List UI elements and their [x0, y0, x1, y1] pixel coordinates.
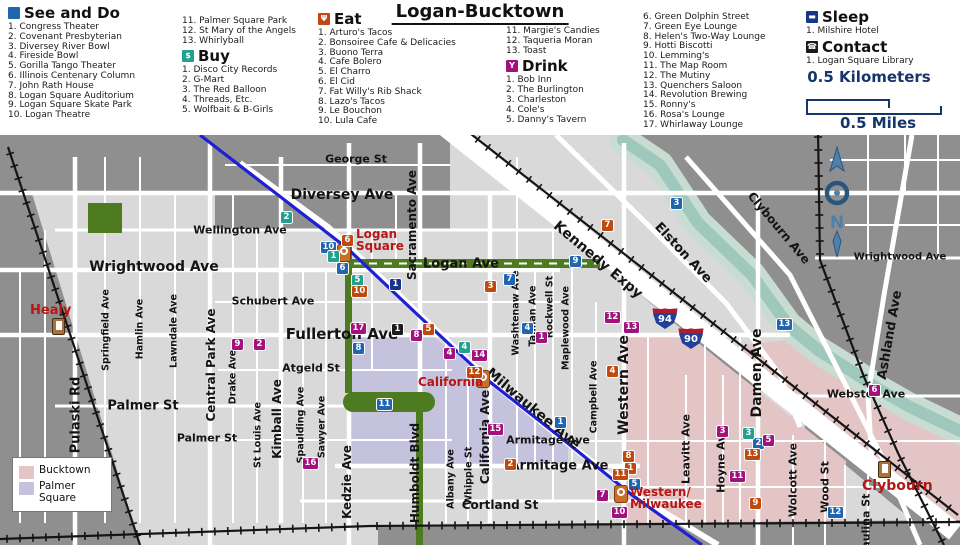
street-label: Albany Ave: [446, 449, 457, 509]
legend-column: ▬Sleep1. Milshire Hotel☎Contact1. Logan …: [806, 7, 914, 67]
poi-badge-eat-9: 9: [749, 497, 762, 510]
street-label: Atgeld St: [282, 362, 340, 375]
poi-badge-eat-7: 7: [601, 219, 614, 232]
legend-item-contact-1: 1. Logan Square Library: [806, 57, 914, 67]
street-label: Kedzie Ave: [340, 445, 354, 519]
clybourn-station-icon: [878, 461, 891, 478]
poi-badge-see_do-11: 11: [376, 398, 393, 411]
category-label: Drink: [522, 57, 568, 75]
legend-item-sleep-1: 1. Milshire Hotel: [806, 27, 914, 37]
street-label: Hamlin Ave: [135, 299, 146, 360]
poi-badge-drink-13: 13: [623, 321, 640, 334]
poi-badge-drink-12: 12: [604, 311, 621, 324]
region-legend-box: BucktownPalmer Square: [12, 457, 112, 512]
poi-badge-drink-8: 8: [410, 329, 423, 342]
poi-badge-buy-3: 3: [742, 427, 755, 440]
category-header-buy: $Buy: [182, 47, 296, 65]
street-label: Palmer St: [177, 432, 237, 445]
poi-badge-eat-5: 5: [422, 323, 435, 336]
legend-column: 11. Margie's Candies12. Taqueria Moran13…: [506, 27, 600, 125]
category-label: Sleep: [822, 8, 869, 26]
region-label: Bucktown: [39, 465, 91, 477]
legend-column: 6. Green Dolphin Street7. Green Eye Loun…: [643, 13, 766, 131]
poi-badge-eat-6: 6: [341, 234, 354, 247]
street-label: Campbell Ave: [589, 361, 600, 434]
category-header-contact: ☎Contact: [806, 38, 914, 56]
poi-badge-contact-1: 1: [391, 323, 404, 336]
sleep-category-icon: ▬: [806, 11, 818, 23]
poi-badge-drink-9: 9: [231, 338, 244, 351]
street-label: Logan Ave: [423, 257, 499, 272]
poi-badge-see_do-4: 4: [521, 322, 534, 335]
street-label: Damen Ave: [749, 329, 765, 418]
poi-badge-drink-11: 11: [729, 470, 746, 483]
interstate-shield-90: 90: [678, 328, 704, 349]
buy-category-icon: $: [182, 50, 194, 62]
poi-badge-buy-2: 2: [280, 211, 293, 224]
street-label: Sacramento Ave: [405, 170, 419, 280]
california-station-label: California: [418, 376, 483, 388]
legend-item-eat-13: 13. Toast: [506, 47, 600, 57]
legend-item-eat-10: 10. Lula Cafe: [318, 117, 456, 127]
logan-bucktown-map-page: Logan-Bucktown See and Do1. Congress The…: [0, 0, 960, 545]
category-header-eat: ΨEat: [318, 10, 456, 28]
legend-item-see_do-10: 10. Logan Theatre: [8, 111, 135, 121]
poi-badge-drink-2: 2: [253, 338, 266, 351]
legend-item-drink-5: 5. Danny's Tavern: [506, 116, 600, 126]
poi-badge-eat-11: 11: [612, 468, 629, 481]
street-label: Spaulding Ave: [296, 387, 307, 464]
poi-badge-see_do-8: 8: [352, 342, 365, 355]
contact-category-icon: ☎: [806, 41, 818, 53]
street-label: Maplewood Ave: [561, 286, 572, 370]
street-label: St Louis Ave: [253, 402, 264, 468]
street-label: Schubert Ave: [232, 295, 315, 308]
poi-badge-drink-4: 4: [443, 347, 456, 360]
poi-badge-eat-3: 3: [484, 280, 497, 293]
interstate-shield-94: 94: [652, 308, 678, 329]
legend-column: ΨEat1. Arturo's Tacos2. Bonsoiree Cafe &…: [318, 9, 456, 127]
healy-station-label: Healy: [30, 304, 71, 317]
street-label: Palmer St: [107, 399, 178, 414]
see_do-category-icon: [8, 7, 20, 19]
poi-badge-drink-1: 1: [535, 331, 548, 344]
street-label: Paulina St: [860, 494, 873, 545]
legend-item-buy-5: 5. Wolfbait & B-Girls: [182, 106, 296, 116]
street-label: Central Park Ave: [204, 309, 218, 422]
street-label: Wellington Ave: [193, 224, 286, 237]
poi-badge-drink-15: 15: [487, 423, 504, 436]
scale-miles-label: 0.5 Miles: [818, 114, 938, 132]
street-label: Clybourn Ave: [745, 189, 813, 267]
poi-badge-eat-2: 2: [504, 458, 517, 471]
eat-category-icon: Ψ: [318, 13, 330, 25]
region-label: Palmer Square: [39, 481, 105, 504]
street-label: Lawndale Ave: [169, 294, 180, 368]
street-label: Diversey Ave: [291, 187, 394, 203]
street-label: Wolcott Ave: [787, 443, 800, 517]
poi-badge-drink-14: 14: [471, 349, 488, 362]
region-legend-row: Palmer Square: [19, 481, 105, 504]
healy-station-icon: [52, 318, 65, 335]
poi-badge-drink-16: 16: [302, 457, 319, 470]
poi-badge-buy-1: 1: [327, 250, 340, 263]
street-label: Wrightwood Ave: [89, 259, 219, 275]
poi-badge-buy-4: 4: [458, 341, 471, 354]
map-overlays: George StDiversey AveWellington AveWrigh…: [0, 135, 960, 545]
poi-badge-eat-4: 4: [606, 365, 619, 378]
street-label: Elston Ave: [651, 220, 714, 286]
street-label: Sawyer Ave: [317, 396, 328, 458]
region-legend-row: Bucktown: [19, 465, 105, 479]
street-label: Pulaski Rd: [69, 377, 84, 454]
poi-badge-see_do-9: 9: [569, 255, 582, 268]
poi-badge-eat-8: 8: [622, 450, 635, 463]
street-label: Kimball Ave: [270, 379, 284, 459]
poi-badge-see_do-6: 6: [336, 262, 349, 275]
category-label: Contact: [822, 38, 887, 56]
street-label: Fullerton Ave: [286, 325, 398, 343]
street-label: Western Ave: [616, 335, 632, 435]
street-label: Wrightwood Ave: [854, 252, 947, 263]
legend-column: See and Do1. Congress Theater2. Covenant…: [8, 3, 135, 121]
category-header-drink: YDrink: [506, 57, 600, 75]
poi-badge-drink-6: 6: [868, 384, 881, 397]
street-label: George St: [325, 153, 387, 166]
region-swatch: [19, 482, 34, 495]
legend-column: 11. Palmer Square Park12. St Mary of the…: [182, 17, 296, 115]
poi-badge-eat-13: 13: [744, 448, 761, 461]
poi-badge-sleep-1: 1: [389, 278, 402, 291]
poi-badge-eat-10: 10: [351, 285, 368, 298]
legend-item-drink-17: 17. Whirlaway Lounge: [643, 121, 766, 131]
street-label: Drake Ave: [228, 350, 239, 404]
poi-badge-see_do-1: 1: [554, 416, 567, 429]
street-label: Whipple St: [464, 447, 475, 506]
logan-square-station-label: LoganSquare: [356, 228, 404, 252]
poi-badge-drink-5: 5: [762, 434, 775, 447]
poi-badge-see_do-12: 12: [827, 506, 844, 519]
category-label: See and Do: [24, 4, 120, 22]
scale-km-label: 0.5 Kilometers: [800, 68, 938, 86]
poi-badge-drink-17: 17: [350, 322, 367, 335]
poi-badge-drink-10: 10: [611, 506, 628, 519]
poi-badge-see_do-3: 3: [670, 197, 683, 210]
street-label: Ashland Ave: [875, 289, 905, 380]
street-label: Springfield Ave: [101, 289, 112, 371]
clybourn-station-label: Clybourn: [862, 479, 933, 493]
poi-badge-see_do-13: 13: [776, 318, 793, 331]
poi-badge-see_do-7: 7: [503, 273, 516, 286]
street-label: California Ave: [478, 390, 492, 484]
street-label: Leavitt Ave: [680, 414, 693, 484]
region-swatch: [19, 466, 34, 479]
legend-bar: Logan-Bucktown See and Do1. Congress The…: [0, 0, 960, 135]
category-label: Buy: [198, 47, 230, 65]
poi-badge-drink-7: 7: [596, 489, 609, 502]
category-header-see_do: See and Do: [8, 4, 135, 22]
legend-item-see_do-13: 13. Whirlyball: [182, 37, 296, 47]
map-canvas: N George StDiversey AveWellington AveWri…: [0, 135, 960, 545]
category-header-sleep: ▬Sleep: [806, 8, 914, 26]
street-label: Rockwell St: [545, 276, 556, 338]
street-label: Webster Ave: [827, 388, 905, 401]
drink-category-icon: Y: [506, 60, 518, 72]
western-milwaukee-station-label: Western/Milwaukee: [630, 486, 702, 510]
street-label: Armitage Ave: [510, 459, 609, 474]
poi-badge-drink-3: 3: [716, 425, 729, 438]
category-label: Eat: [334, 10, 362, 28]
street-label: Humboldt Blvd: [408, 423, 422, 523]
western-milwaukee-station-icon: [614, 485, 628, 503]
